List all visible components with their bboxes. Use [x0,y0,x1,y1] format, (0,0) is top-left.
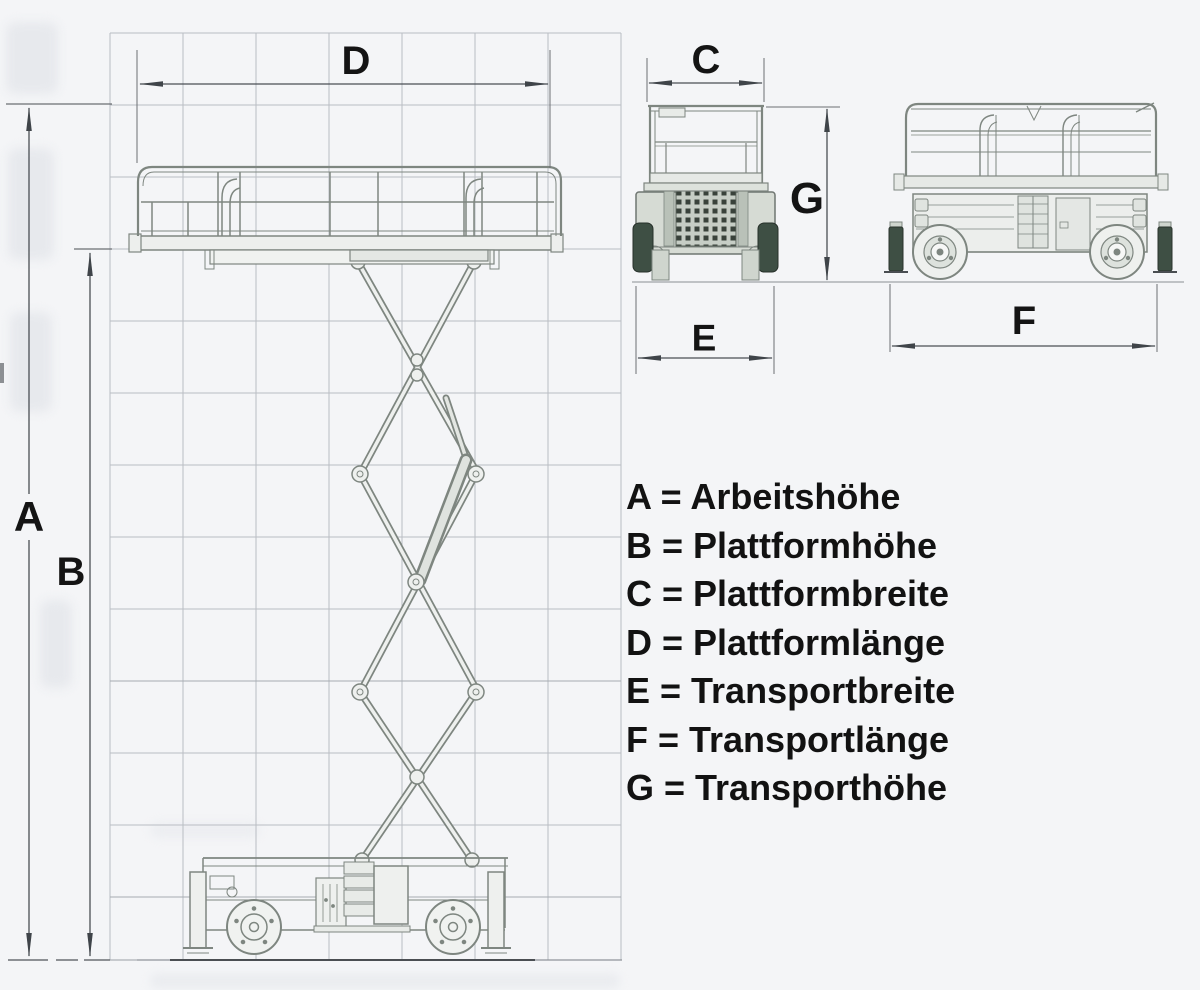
platform-deck [134,236,558,250]
dim-label-a: A [9,494,49,540]
tire [633,223,653,272]
legend-item-a: A = Arbeitshöhe [626,473,1026,522]
dim-label-c: C [692,40,721,80]
wheel [913,225,967,279]
dim-label-b: B [57,552,86,592]
tire [758,223,778,272]
gate-handle [222,179,484,236]
wheel [1090,225,1144,279]
scissor-mechanism [351,255,484,867]
legend-item-c: C = Plattformbreite [626,570,1026,619]
folded-scissor-stack [676,191,736,246]
railing-posts [152,172,537,236]
platform [894,103,1168,190]
scissor-lift-dimension-diagram: A B C D E F G A = Arbeitshöhe B = Plattf… [0,0,1200,990]
chassis [183,858,511,954]
wheel [227,900,281,954]
legend: A = Arbeitshöhe B = Plattformhöhe C = Pl… [626,473,1026,813]
legend-item-e: E = Transportbreite [626,667,1026,716]
legend-item-g: G = Transporthöhe [626,764,1026,813]
wheel [426,900,480,954]
platform [644,106,768,191]
hydraulic-cylinder [420,398,466,580]
scissor-joints [351,255,484,867]
dim-label-e: E [692,320,717,357]
dim-label-f: F [1012,301,1036,341]
elevated-view [6,50,622,960]
engine-box [314,862,410,932]
legend-item-f: F = Transportlänge [626,716,1026,765]
legend-item-d: D = Plattformlänge [626,619,1026,668]
platform [129,167,563,269]
control-cabinet [1056,198,1090,250]
scissor-top-bracket [350,250,488,261]
legend-item-b: B = Plattformhöhe [626,522,1026,571]
dim-label-g: G [790,177,824,221]
dim-label-d: D [342,41,371,81]
